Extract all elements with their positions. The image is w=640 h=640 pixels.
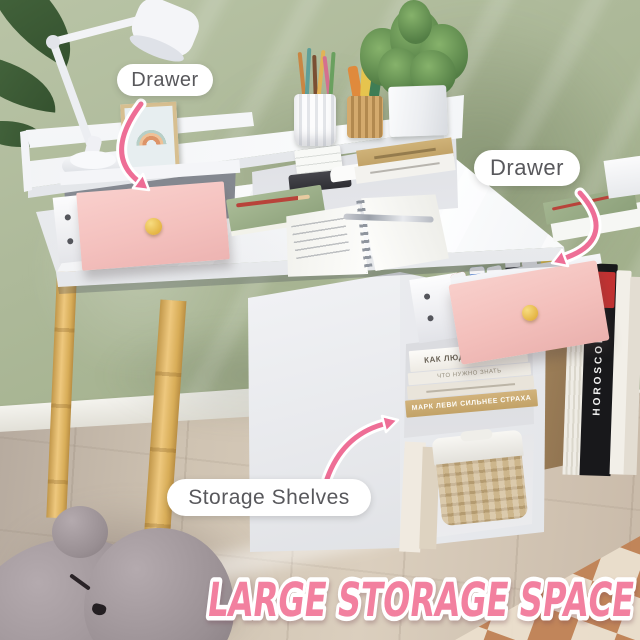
callout-label-storage-shelves: Storage Shelves (167, 479, 371, 516)
callout-arrow (552, 193, 596, 266)
callout-label-drawer-top: Drawer (117, 64, 213, 96)
product-annotation-image: HOROSCOPE КАК ЛЮДИ ДУМАЮТ ЧТО НУЖНО ЗНАТ… (0, 0, 640, 640)
callout-arrow (327, 416, 398, 479)
callout-arrows (0, 0, 640, 640)
callout-arrow (122, 104, 149, 190)
headline-text: LARGE STORAGE SPACE (205, 573, 638, 628)
callout-label-drawer-right: Drawer (474, 150, 580, 186)
headline-banner: LARGE STORAGE SPACE (0, 552, 640, 640)
